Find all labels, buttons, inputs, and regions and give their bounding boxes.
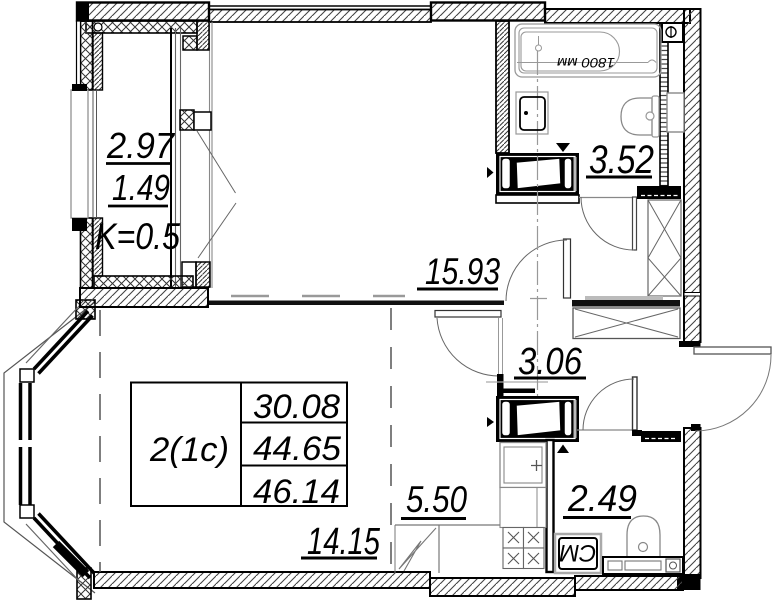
svg-text:1800 мм: 1800 мм [557,55,615,71]
svg-text:5.50: 5.50 [406,479,467,520]
svg-text:44.65: 44.65 [253,430,341,468]
svg-text:СМ: СМ [559,539,596,566]
svg-text:46.14: 46.14 [253,473,340,511]
svg-text:2.49: 2.49 [567,478,637,519]
svg-text:K=0.5: K=0.5 [95,216,180,257]
svg-text:1.49: 1.49 [112,167,170,208]
svg-text:2(1с): 2(1с) [149,431,229,469]
svg-text:15.93: 15.93 [425,251,500,292]
svg-text:3.52: 3.52 [589,138,654,182]
svg-text:30.08: 30.08 [253,388,340,426]
svg-text:2.97: 2.97 [106,125,176,166]
